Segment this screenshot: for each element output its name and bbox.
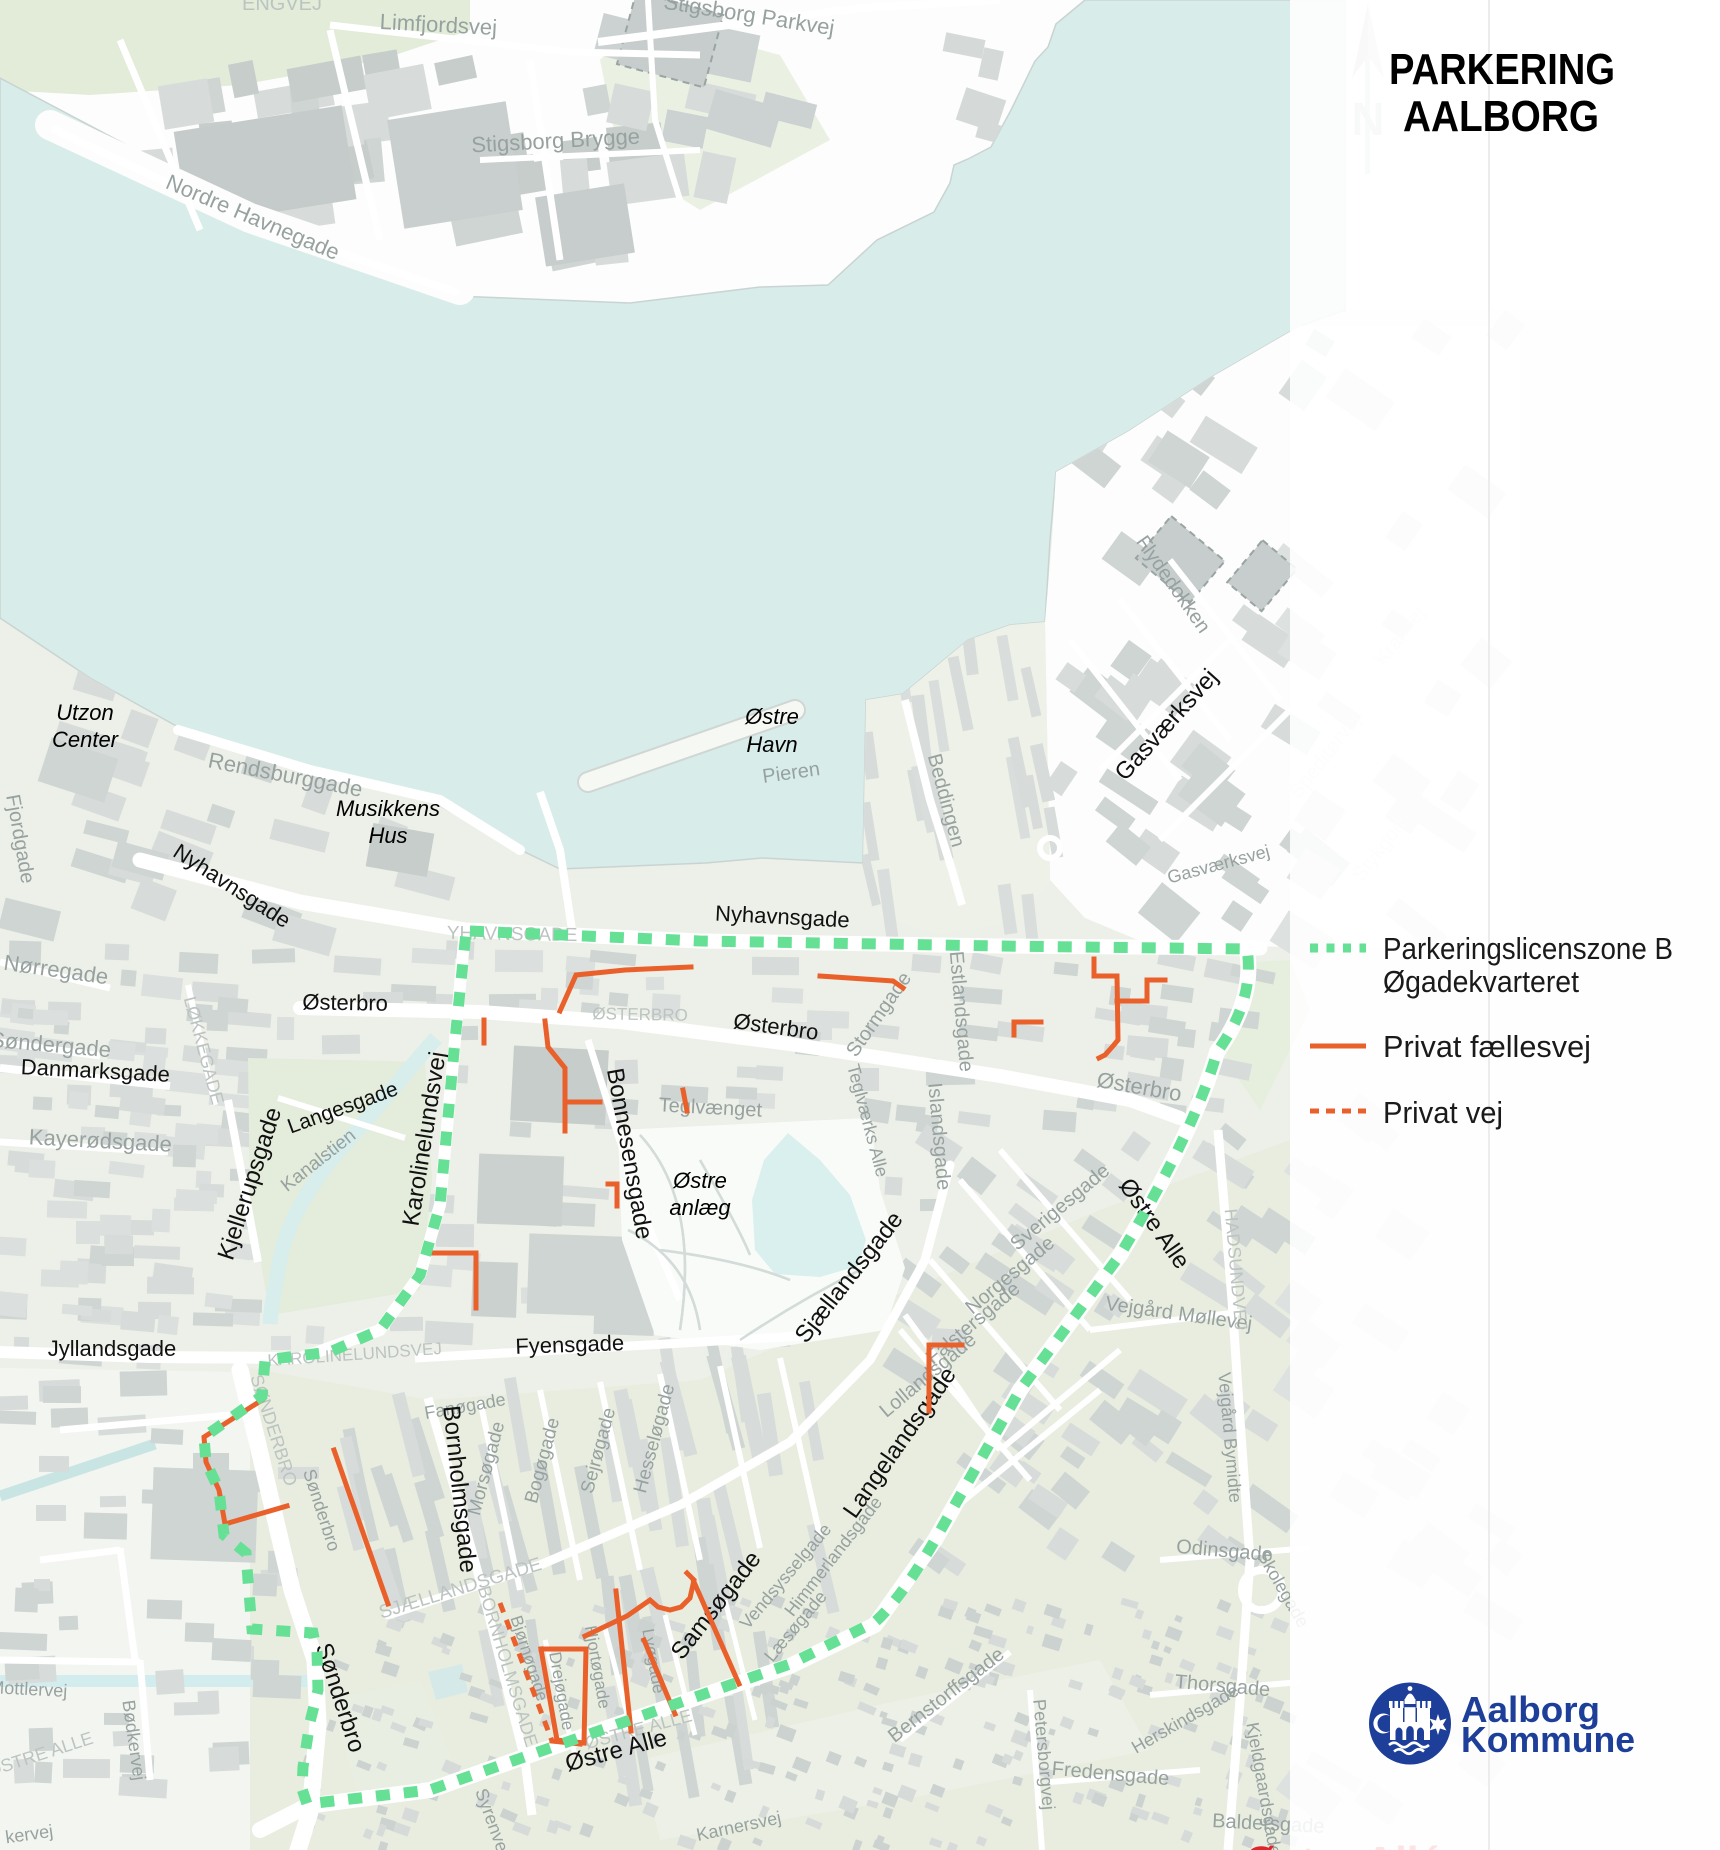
svg-text:Østerbro: Østerbro <box>302 989 388 1015</box>
svg-text:Kommune: Kommune <box>1461 1719 1635 1760</box>
svg-text:Mottlervej: Mottlervej <box>0 1677 68 1701</box>
svg-text:ENGVEJ: ENGVEJ <box>242 0 322 15</box>
svg-text:Utzon: Utzon <box>56 700 113 725</box>
svg-text:Østre: Østre <box>744 704 799 729</box>
svg-text:Parkeringslicenszone B: Parkeringslicenszone B <box>1383 931 1673 966</box>
svg-text:Østre: Østre <box>672 1168 727 1193</box>
svg-text:Musikkens: Musikkens <box>336 796 440 821</box>
svg-text:AALBORG: AALBORG <box>1403 92 1599 141</box>
svg-text:Center: Center <box>52 727 120 752</box>
svg-text:PARKERING: PARKERING <box>1389 45 1615 94</box>
svg-text:Fyensgade: Fyensgade <box>515 1330 625 1359</box>
svg-text:Privat vej: Privat vej <box>1383 1095 1503 1130</box>
svg-text:Jyllandsgade: Jyllandsgade <box>48 1336 176 1361</box>
svg-text:anlæg: anlæg <box>669 1195 731 1220</box>
svg-text:Havn: Havn <box>746 732 797 757</box>
svg-text:Øgadekvarteret: Øgadekvarteret <box>1383 964 1579 999</box>
svg-text:Hus: Hus <box>368 823 407 848</box>
svg-text:N: N <box>1351 93 1384 145</box>
svg-text:ØSTERBRO: ØSTERBRO <box>592 1004 688 1025</box>
svg-text:Privat fællesvej: Privat fællesvej <box>1383 1029 1591 1064</box>
